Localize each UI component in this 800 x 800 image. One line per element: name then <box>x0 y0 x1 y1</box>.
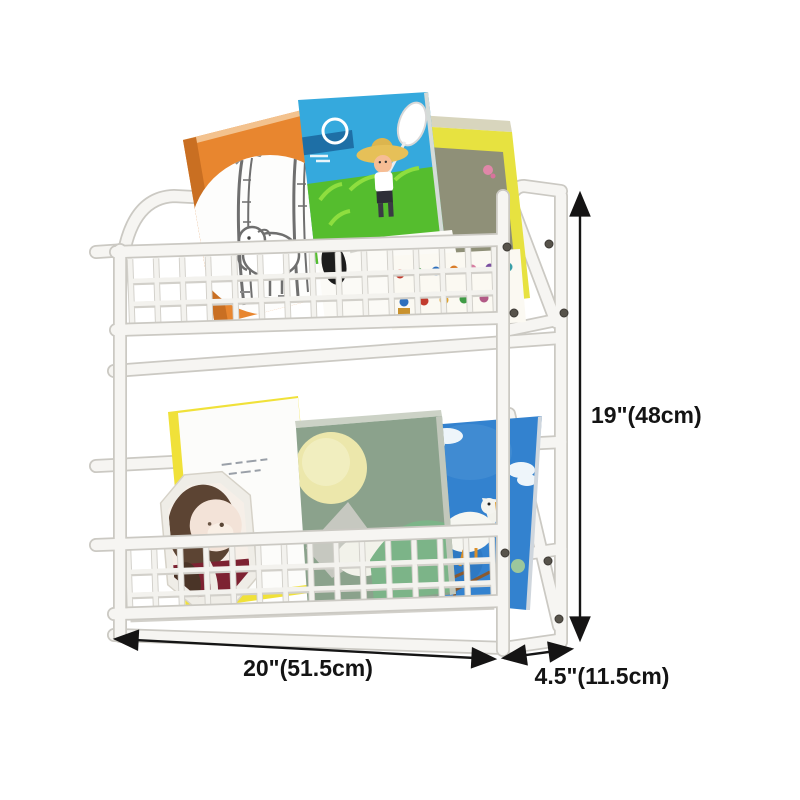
product-dimension-image: 19"(48cm) 20"(51.5cm) 4.5"(11.5cm) <box>0 0 800 800</box>
depth-dimension-label: 4.5"(11.5cm) <box>535 663 670 689</box>
green-moon-book <box>295 410 456 610</box>
height-dimension-label: 19"(48cm) <box>591 402 702 428</box>
bookshelf-scene: 19"(48cm) 20"(51.5cm) 4.5"(11.5cm) <box>0 0 800 800</box>
width-dimension-label: 20"(51.5cm) <box>243 655 373 681</box>
bottom-tier-books <box>157 396 542 611</box>
